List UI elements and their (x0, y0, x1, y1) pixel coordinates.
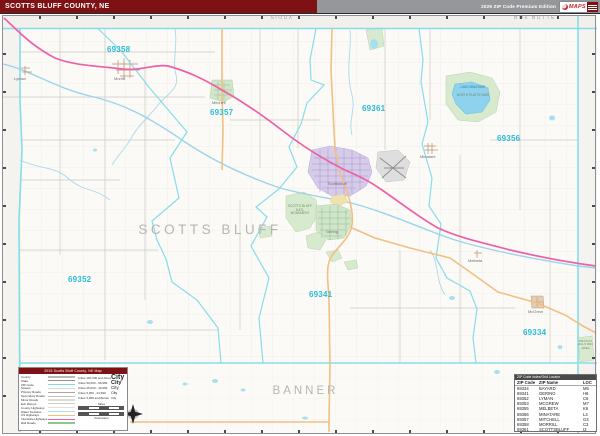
town-label-melbeta: Melbeta (468, 258, 482, 263)
table-row: 69361SCOTTSBLUFFI3 (515, 427, 596, 432)
neighbor-county-boxbutte: BOX BUTTE (500, 15, 570, 21)
zip-label-69361: 69361 (362, 104, 385, 113)
poi-label-lake-minatare: LAKE MINATARE (456, 86, 490, 90)
map-sheet: SCOTTS BLUFF COUNTY, NE 2026 ZIP Code Pr… (0, 0, 600, 436)
town-label-morrill: Morrill (114, 76, 125, 81)
zip-label-69352: 69352 (68, 275, 91, 284)
town-label-lyman: Lyman (14, 76, 26, 81)
town-label-scottsbluff: Scottsbluff (328, 181, 347, 186)
town-label-mitchell: Mitchell (212, 100, 226, 105)
scale-bar-kilometers: Kilometers (78, 412, 125, 420)
zip-label-69358: 69358 (107, 45, 130, 54)
town-label-gering: Gering (326, 229, 338, 234)
county-name-label: SCOTTS BLUFF (105, 222, 315, 237)
poi-label-nwr: NORTH PLATTE NWR (454, 94, 492, 98)
zip-label-69341: 69341 (309, 290, 332, 299)
poi-label-wildcat-hills: WILDCAT HILLS REC AREA (577, 340, 594, 350)
town-label-mcgrew: McGrew (528, 309, 543, 314)
zip-label-69357: 69357 (210, 108, 233, 117)
neighbor-county-sioux: SIOUX (252, 15, 312, 21)
poi-label-monument: SCOTTS BLUFF NATL MONUMENT (287, 205, 313, 216)
legend-line-items: County State ZIP Code Streets Primary Ro… (21, 375, 75, 425)
zip-label-69356: 69356 (497, 134, 520, 143)
scale-bar-miles: Miles (78, 402, 125, 410)
map-legend: 2026 Scotts Bluff County, NE Map County … (18, 367, 128, 431)
zip-label-69334: 69334 (523, 328, 546, 337)
town-label-minatare: Minatare (420, 154, 436, 159)
zip-index-table: ZIP Code Index/Grid Locator ZIP CodeZIP … (514, 374, 597, 432)
legend-city-classes: Cities 100,000 and AboveCity Cities 50,0… (75, 375, 125, 425)
neighbor-county-banner: BANNER (248, 385, 363, 397)
